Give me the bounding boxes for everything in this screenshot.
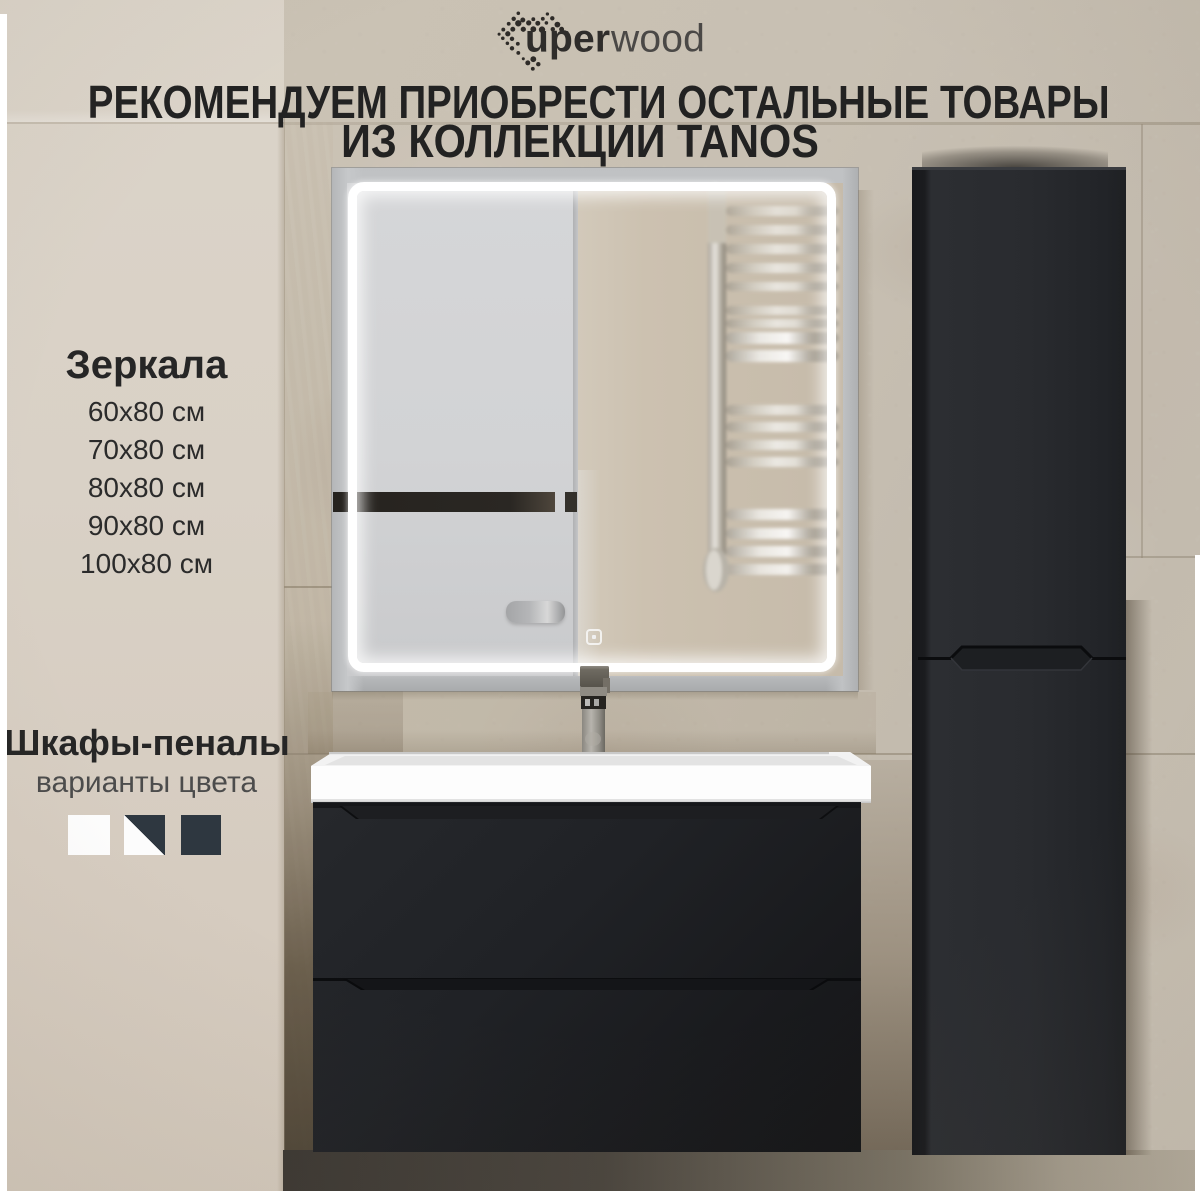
svg-text:uper: uper bbox=[525, 18, 610, 61]
svg-text:wood: wood bbox=[610, 18, 705, 61]
